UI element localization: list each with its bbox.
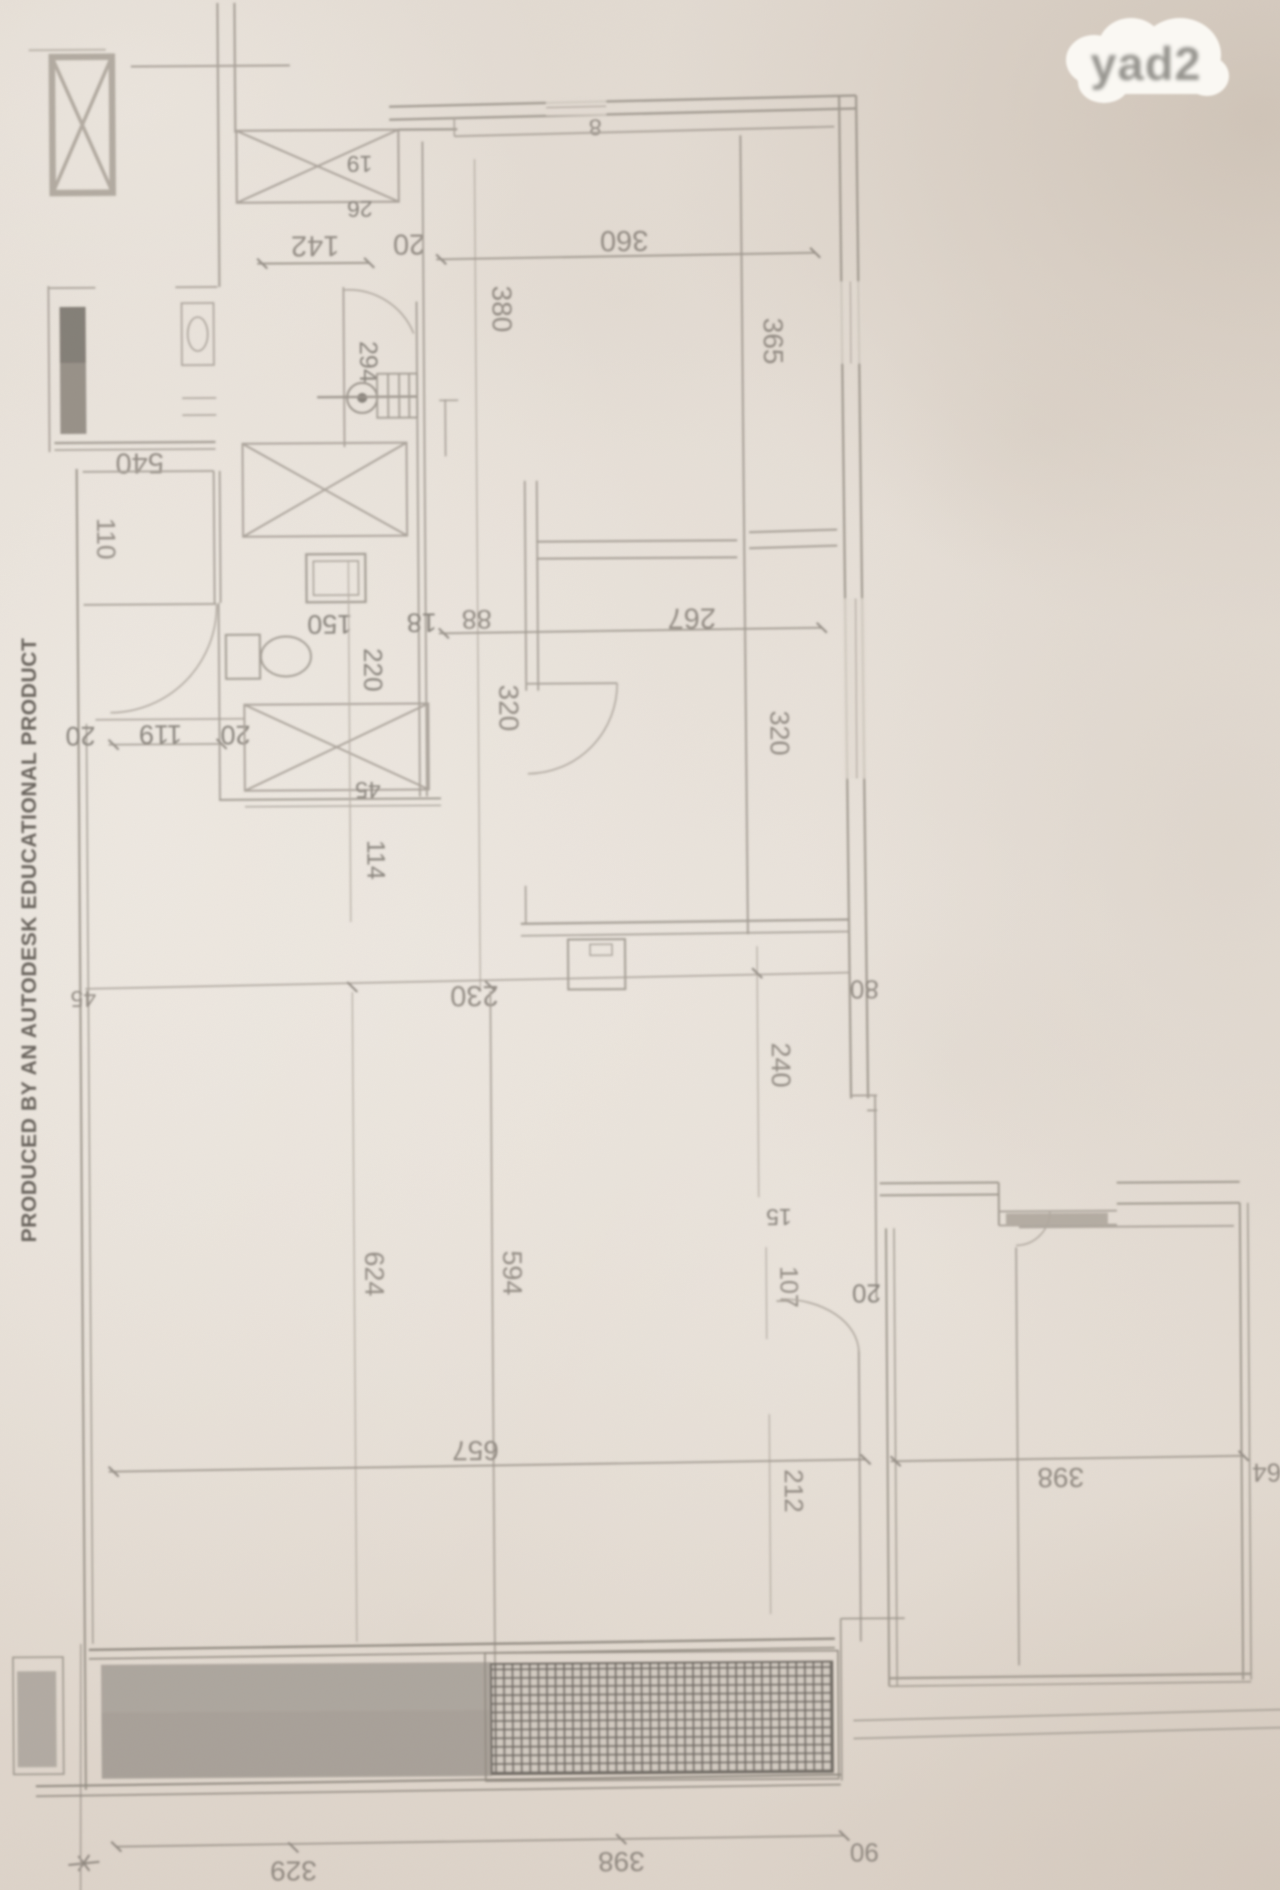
- svg-text:yad2: yad2: [1090, 37, 1201, 90]
